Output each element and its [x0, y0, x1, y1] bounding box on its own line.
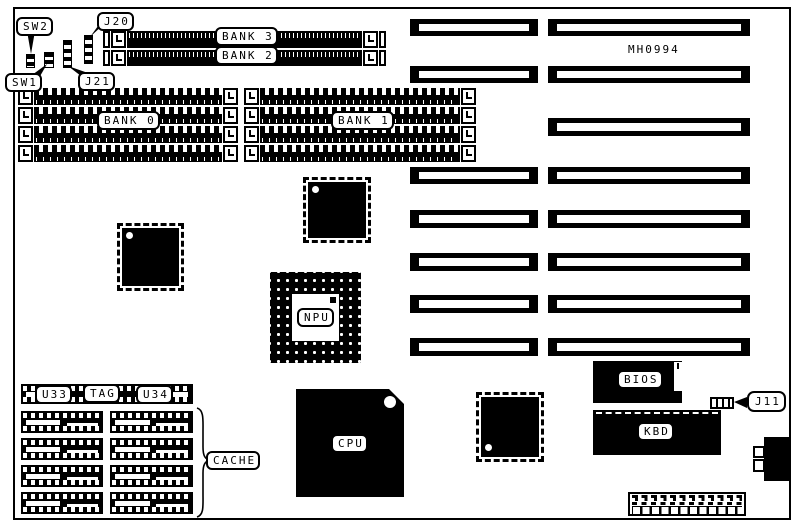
j21-jumper	[63, 40, 72, 68]
pin1-dot	[384, 396, 396, 408]
simm-endcap	[379, 50, 386, 66]
cache-socket	[110, 492, 193, 514]
simm-latch	[111, 50, 126, 66]
simm-latch	[111, 31, 126, 48]
isa-slot	[410, 253, 538, 271]
bank0-label: BANK 0	[97, 111, 160, 130]
simm-latch	[223, 88, 238, 105]
sw1-switch	[44, 52, 54, 68]
simm-latch	[18, 126, 33, 143]
simm-latch	[461, 88, 476, 105]
simm-endcap	[103, 31, 110, 48]
kbd-chip-dash	[596, 412, 718, 414]
pin1-dot	[126, 232, 133, 239]
isa-slot	[548, 210, 750, 228]
cache-socket	[21, 411, 103, 433]
bios-label: BIOS	[617, 370, 663, 389]
u34-label: U34	[136, 385, 173, 404]
isa-slot	[548, 295, 750, 313]
j20-label: J20	[97, 12, 134, 31]
isa-slot	[548, 66, 750, 83]
cache-label: CACHE	[206, 451, 260, 470]
din-pin-box	[753, 446, 765, 458]
simm-slot-bank1	[244, 145, 476, 162]
simm-latch	[461, 107, 476, 124]
simm-endcap	[379, 31, 386, 48]
bank2-label: BANK 2	[215, 46, 278, 65]
cpu-label: CPU	[331, 434, 368, 453]
isa-slot	[548, 19, 750, 36]
cache-socket	[110, 465, 193, 487]
motherboard-diagram: SW2 SW1 J20 J21 BANK 3 BANK 2 BANK	[0, 0, 798, 527]
u33-label: U33	[35, 385, 72, 404]
din-keyboard-connector	[764, 437, 791, 481]
simm-latch	[244, 145, 259, 162]
simm-latch	[244, 126, 259, 143]
simm-latch	[461, 145, 476, 162]
simm-latch	[244, 107, 259, 124]
isa-slot	[548, 167, 750, 184]
simm-latch	[18, 145, 33, 162]
simm-latch	[18, 107, 33, 124]
board-part-number: MH0994	[628, 43, 680, 56]
simm-slot-bank1	[244, 88, 476, 105]
qfp-chip	[117, 223, 184, 291]
cache-socket	[21, 492, 103, 514]
isa-slot	[410, 210, 538, 228]
sw1-label: SW1	[5, 73, 42, 92]
bank1-label: BANK 1	[331, 111, 394, 130]
pin1-dot	[330, 297, 336, 303]
cache-socket	[110, 438, 193, 460]
power-pins-row	[632, 498, 742, 501]
kbd-label: KBD	[637, 422, 674, 441]
simm-slot-bank0	[18, 88, 238, 105]
j11-connector	[710, 397, 734, 409]
j21-label: J21	[78, 72, 115, 91]
isa-slot	[548, 338, 750, 356]
isa-slot	[548, 253, 750, 271]
sw2-label: SW2	[16, 17, 53, 36]
sw2-switch	[26, 54, 35, 68]
isa-slot	[410, 66, 538, 83]
qfp-chip	[303, 177, 371, 243]
isa-slot	[410, 338, 538, 356]
cache-socket	[21, 438, 103, 460]
bank3-label: BANK 3	[215, 27, 278, 46]
isa-slot	[410, 295, 538, 313]
qfp-chip	[476, 392, 544, 462]
npu-label: NPU	[297, 308, 334, 327]
simm-latch	[223, 107, 238, 124]
power-connector	[628, 492, 746, 516]
tag-label: TAG	[83, 384, 120, 403]
power-keys-row	[632, 502, 742, 505]
cache-socket	[21, 465, 103, 487]
simm-latch	[363, 31, 378, 48]
bios-notch	[674, 362, 684, 391]
power-holes-row	[632, 506, 742, 514]
simm-latch	[363, 50, 378, 66]
isa-slot	[548, 118, 750, 136]
isa-slot	[410, 19, 538, 36]
simm-latch	[223, 145, 238, 162]
j20-jumper	[84, 35, 93, 64]
isa-slot	[410, 167, 538, 184]
simm-latch	[223, 126, 238, 143]
simm-endcap	[103, 50, 110, 66]
pin1-dot	[312, 186, 319, 193]
simm-slot-bank0	[18, 145, 238, 162]
simm-latch	[461, 126, 476, 143]
cache-socket	[110, 411, 193, 433]
din-pin-box	[753, 459, 765, 472]
pin1-dot	[485, 444, 492, 451]
simm-latch	[244, 88, 259, 105]
j11-label: J11	[747, 391, 786, 412]
bios-notch-tick	[677, 363, 679, 369]
